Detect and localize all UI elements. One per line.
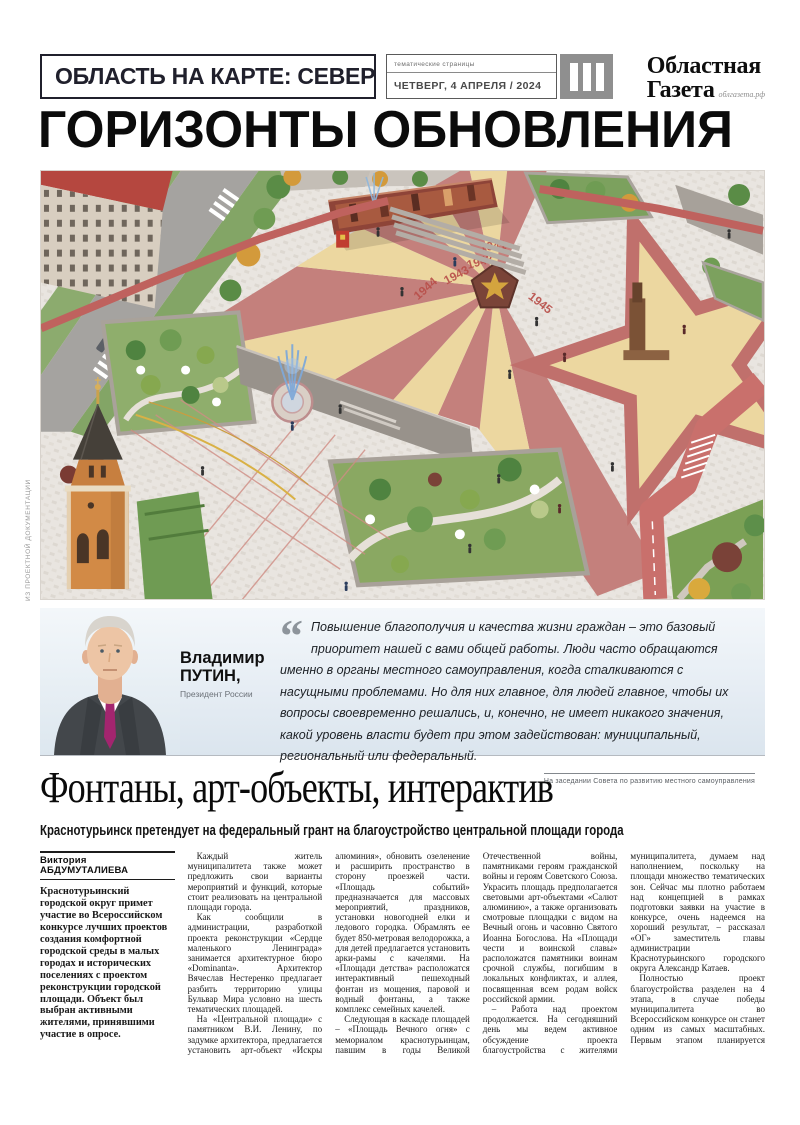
article-byline: Виктория АБДУМУТАЛИЕВА	[40, 851, 175, 880]
quote-body: “ Повышение благополучия и качества жизн…	[266, 608, 765, 755]
pages-label: тематические страницы	[387, 55, 556, 73]
speaker-first-name: Владимир	[180, 650, 266, 668]
article-paragraph: Как сообщили в администрации, разработко…	[188, 912, 323, 1014]
quote-mark-icon: “	[280, 623, 303, 648]
article-paragraph: Каждый житель муниципалитета также может…	[188, 851, 323, 912]
article-body: Виктория АБДУМУТАЛИЕВА Краснотурьинский …	[40, 851, 765, 1059]
bottom-planter	[330, 450, 587, 585]
left-planter	[103, 312, 255, 433]
logo-line1: Областная	[647, 55, 765, 79]
newspaper-logo: Областная Газетаоблгазета.рф	[647, 54, 765, 99]
quote-block: Владимир ПУТИН, Президент России “ Повыш…	[40, 608, 765, 756]
page-headline: ГОРИЗОНТЫ ОБНОВЛЕНИЯ	[38, 100, 733, 160]
article-lead: Краснотурьинский городской округ примет …	[40, 886, 175, 1041]
quote-text: Повышение благополучия и качества жизни …	[280, 620, 728, 763]
issue-date: ЧЕТВЕРГ, 4 АПРЕЛЯ / 2024	[387, 73, 556, 98]
newspaper-page: ОБЛАСТЬ НА КАРТЕ: СЕВЕР тематические стр…	[0, 0, 800, 1125]
masthead: ОБЛАСТЬ НА КАРТЕ: СЕВЕР тематические стр…	[40, 54, 765, 99]
section-title-box: ОБЛАСТЬ НА КАРТЕ: СЕВЕР	[40, 54, 376, 99]
plaza-render-image: 1941 1942 1943 1944 1945	[40, 170, 765, 600]
article-subtitle: Краснотурьинск претендует на федеральный…	[40, 822, 624, 839]
speaker-photo	[40, 608, 180, 755]
article-title: Фонтаны, арт-объекты, интерактив	[40, 763, 553, 814]
section-title: ОБЛАСТЬ НА КАРТЕ: СЕВЕР	[55, 63, 375, 90]
plaza-render-svg: 1941 1942 1943 1944 1945	[41, 171, 764, 599]
speaker-last-name: ПУТИН,	[180, 668, 266, 686]
logo-site: облгазета.рф	[719, 90, 765, 99]
page-number-bars-icon	[560, 54, 613, 99]
photo-credit: ИЗ ПРОЕКТНОЙ ДОКУМЕНТАЦИИ	[25, 461, 32, 601]
speaker-info: Владимир ПУТИН, Президент России	[180, 608, 266, 755]
logo-line2: Газетаоблгазета.рф	[647, 79, 765, 103]
issue-info-box: тематические страницы ЧЕТВЕРГ, 4 АПРЕЛЯ …	[386, 54, 557, 99]
speaker-role: Президент России	[180, 689, 266, 699]
putin-portrait	[40, 609, 180, 755]
